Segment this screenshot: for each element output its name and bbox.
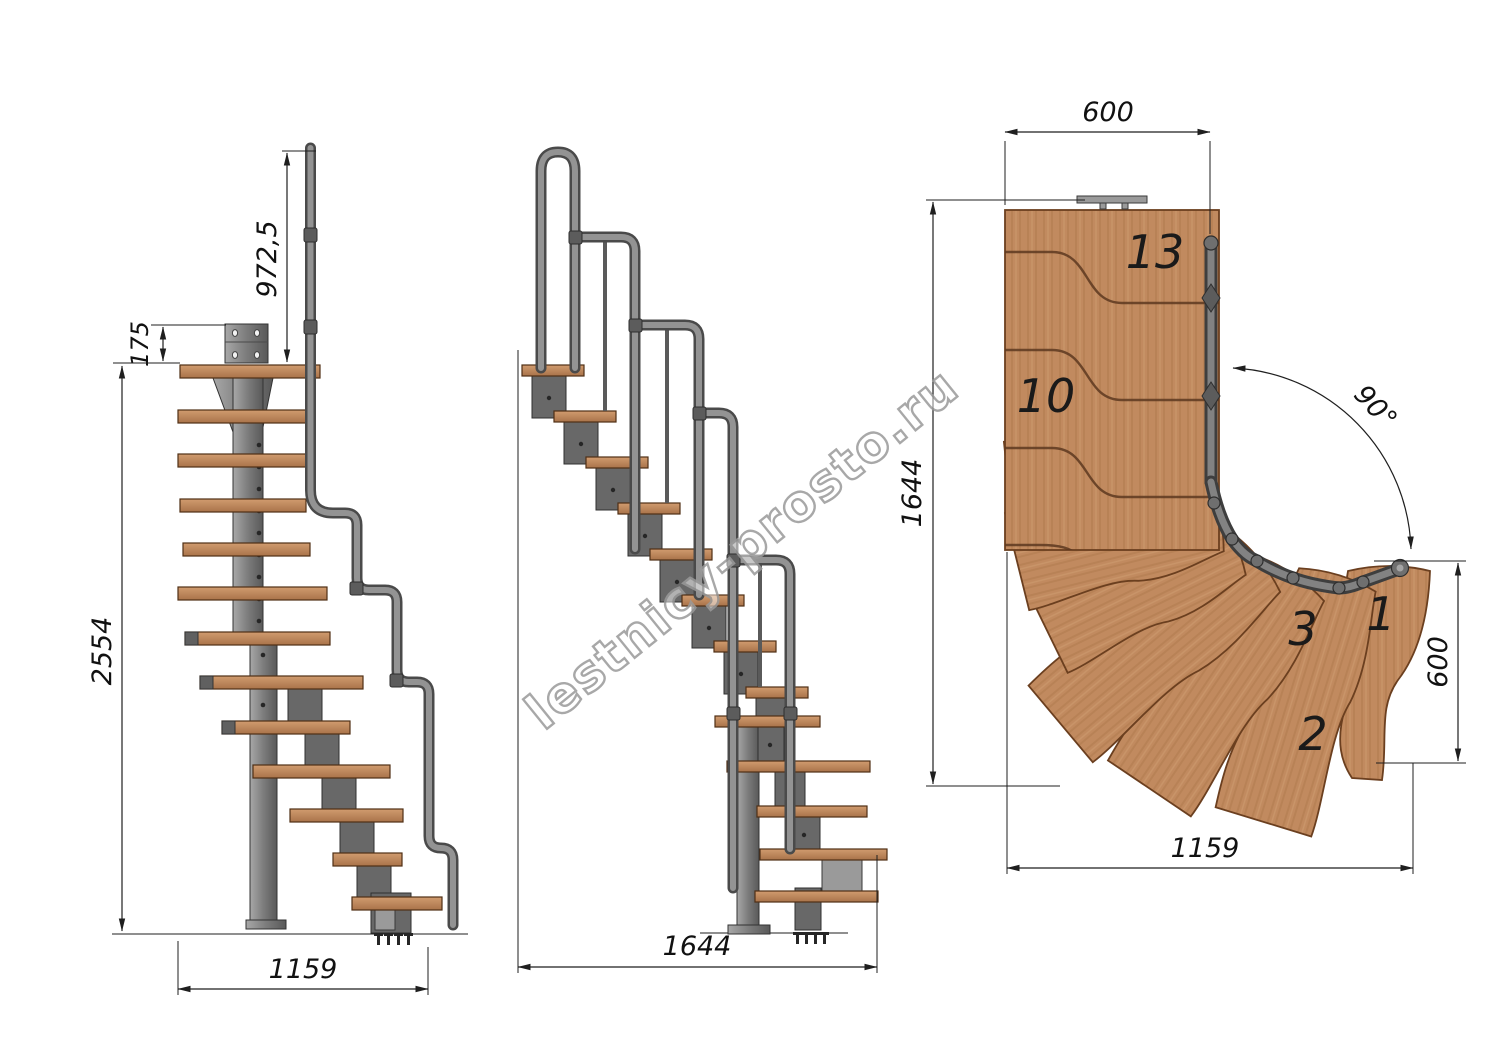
dim-label-plan-top-width: 600 — [1082, 97, 1134, 128]
step-number-13: 13 — [1126, 225, 1185, 279]
dim-label-plan-side-height: 1644 — [897, 459, 928, 528]
anchor-bolts — [374, 933, 413, 945]
dim-plate-offset: 175 — [126, 321, 226, 367]
tread — [178, 587, 327, 600]
plan-view: 13 10 3 1 2 600 1644 90° 600 — [897, 97, 1466, 874]
dim-label-side-length: 1644 — [663, 931, 732, 962]
tread — [746, 687, 808, 698]
tread — [185, 632, 330, 645]
tread — [178, 454, 308, 467]
wall-mount-plate — [225, 324, 268, 363]
dim-label-plate-offset: 175 — [126, 321, 154, 367]
tread — [222, 721, 350, 734]
dim-label-rail-height: 972,5 — [252, 220, 283, 297]
tread — [727, 761, 870, 772]
dim-label-turn-angle: 90° — [1348, 379, 1403, 435]
dim-label-plan-bottom-length: 1159 — [1171, 833, 1240, 864]
step-number-1: 1 — [1366, 587, 1395, 641]
dim-turn-angle: 90° — [1233, 368, 1411, 549]
step-number-10: 10 — [1017, 369, 1076, 423]
tread — [180, 499, 306, 512]
tread — [554, 411, 616, 422]
tread — [760, 849, 887, 860]
tread — [200, 676, 363, 689]
tread — [178, 410, 307, 423]
top-bracket — [1077, 196, 1147, 203]
tread — [333, 853, 402, 866]
step-number-3: 3 — [1288, 602, 1317, 656]
tread — [183, 543, 310, 556]
tread — [757, 806, 867, 817]
dim-label-total-height: 2554 — [87, 617, 118, 686]
tread — [352, 897, 442, 910]
dim-label-front-width: 1159 — [269, 954, 338, 985]
staircase-technical-drawing: 972,5 175 2554 1159 — [0, 0, 1500, 1061]
step-number-2: 2 — [1298, 707, 1327, 761]
dim-front-width: 1159 — [178, 941, 428, 995]
tread — [180, 365, 320, 378]
tread — [290, 809, 403, 822]
tread — [618, 503, 680, 514]
drawing-canvas: 972,5 175 2554 1159 — [0, 0, 1500, 1061]
tread — [755, 891, 878, 902]
front-elevation-view: 972,5 175 2554 1159 — [87, 148, 468, 995]
tread — [253, 765, 390, 778]
dim-label-plan-exit-width: 600 — [1423, 636, 1454, 688]
dim-total-height: 2554 — [87, 363, 180, 931]
tread — [714, 641, 776, 652]
anchor-bolts — [793, 932, 829, 944]
